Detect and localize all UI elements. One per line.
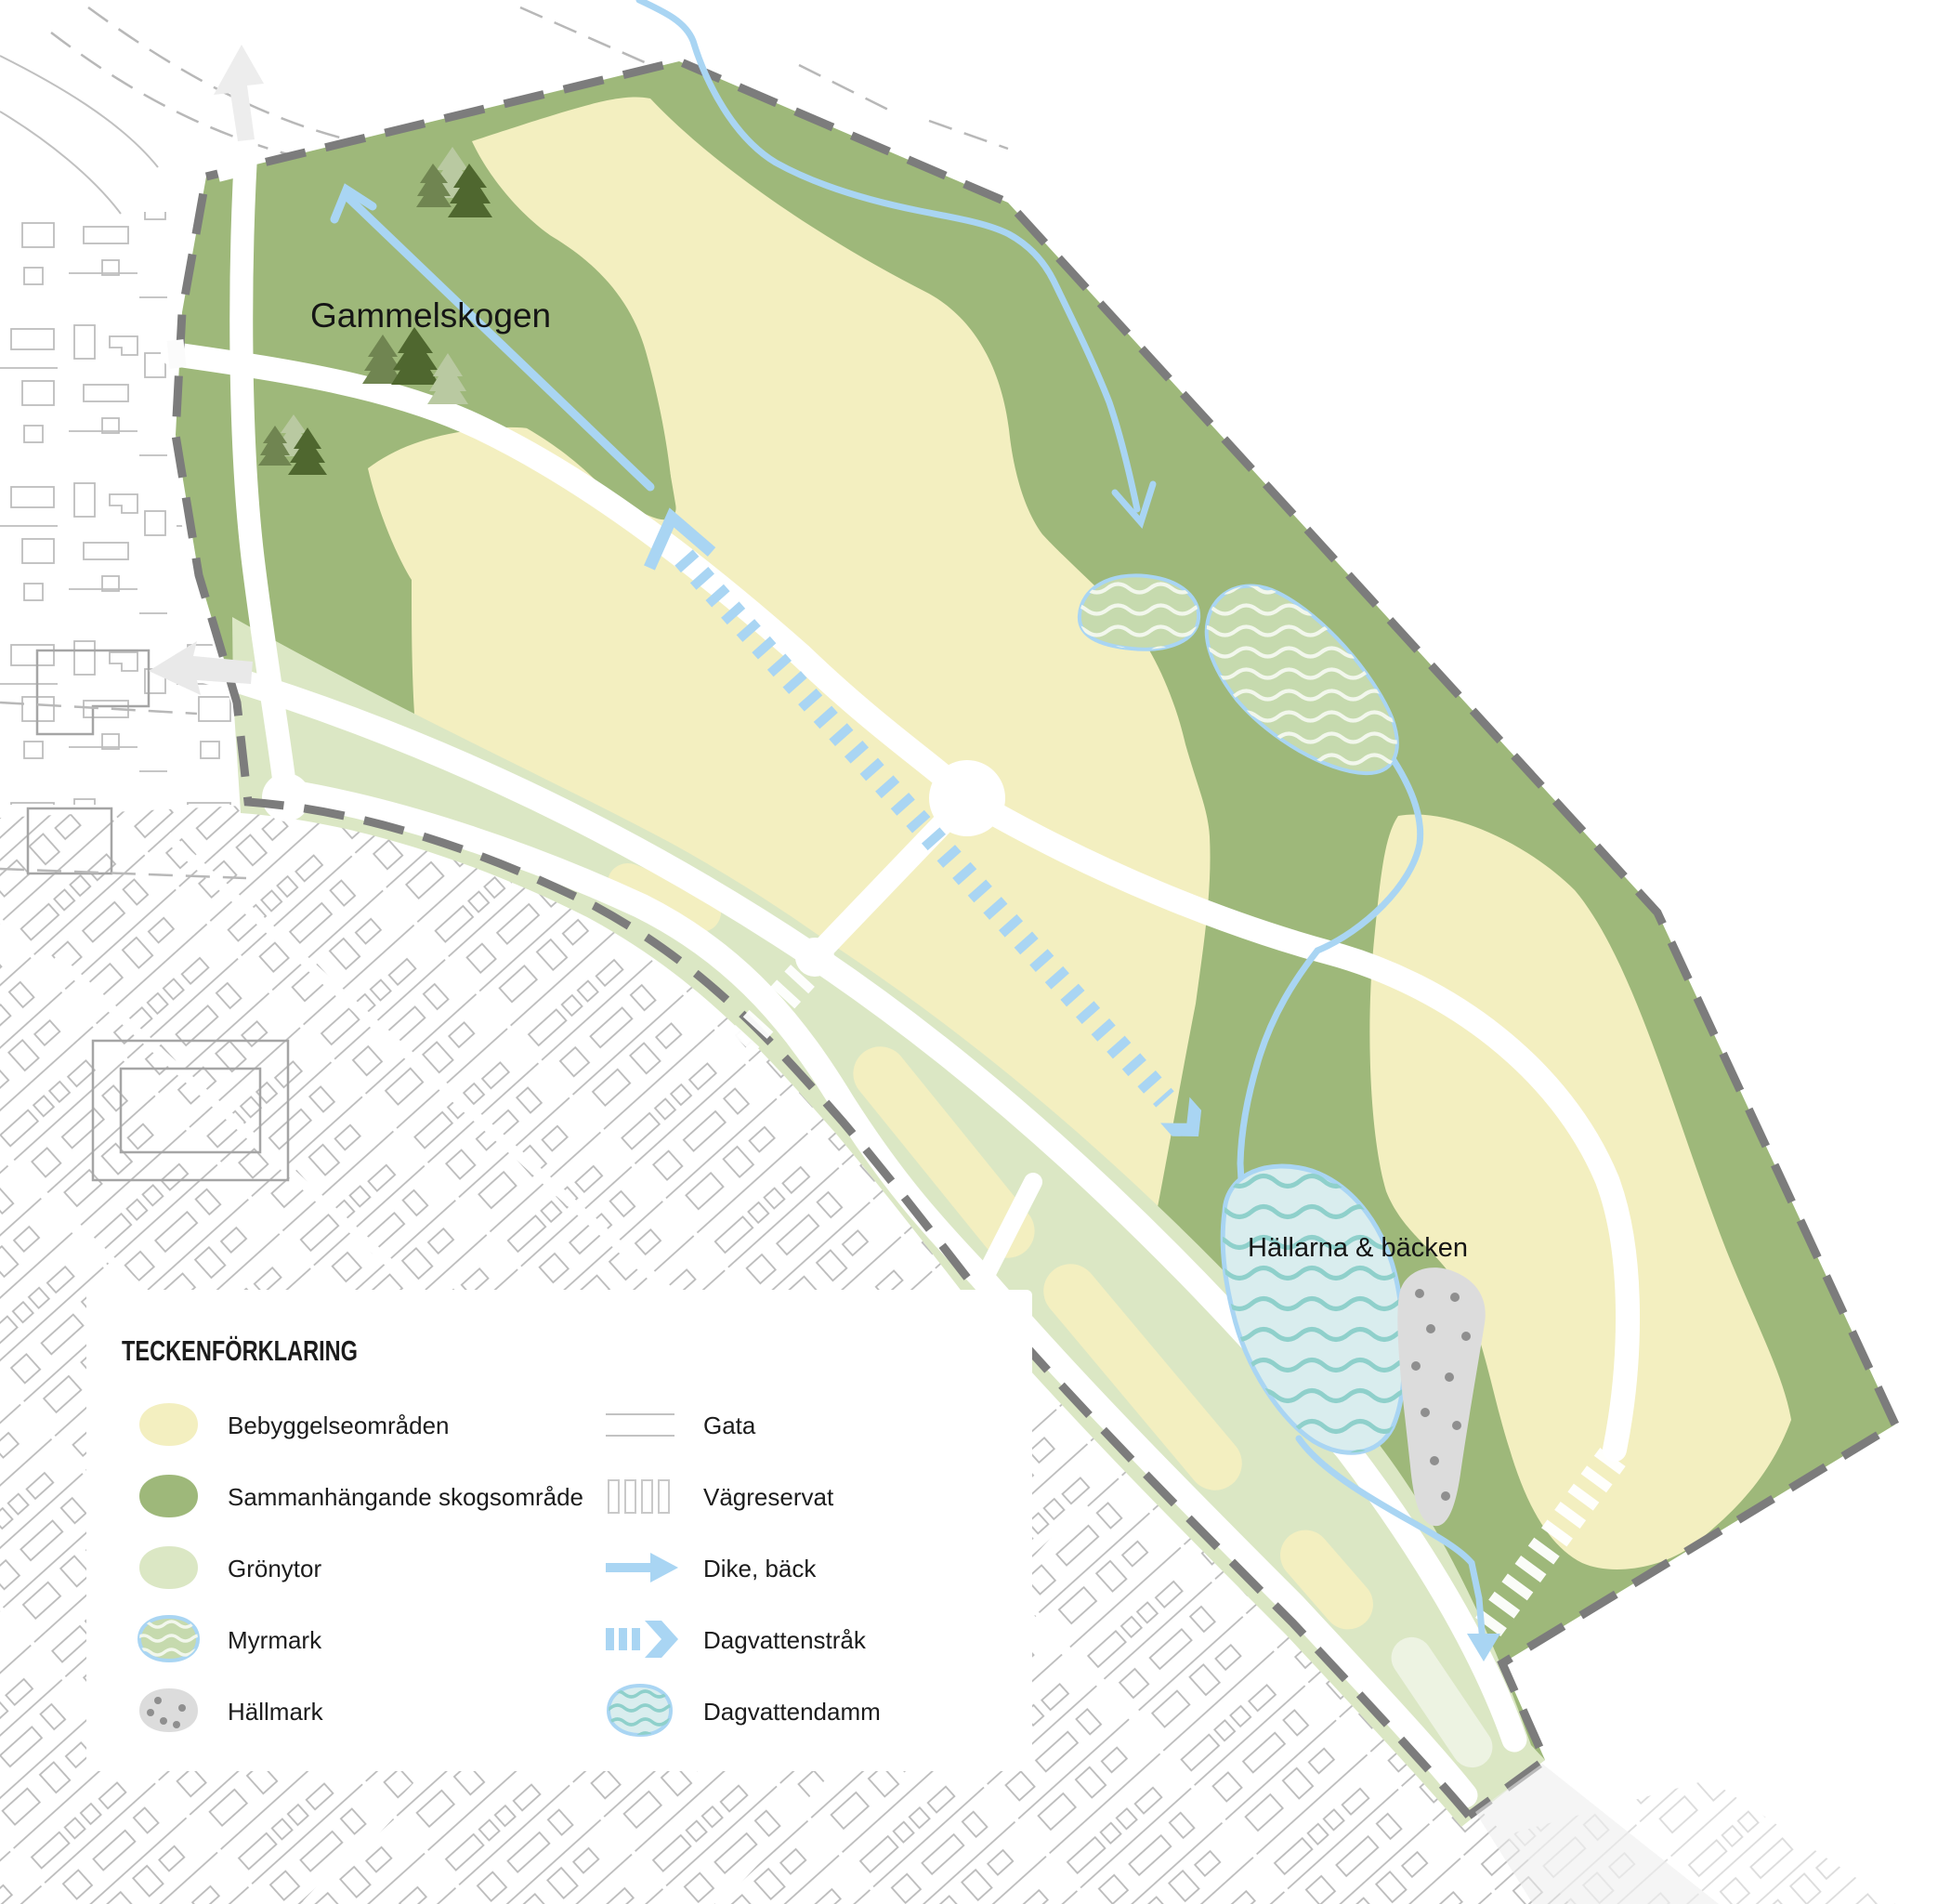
svg-text:Sammanhängande skogsområde: Sammanhängande skogsområde: [228, 1483, 583, 1511]
svg-text:Bebyggelseområden: Bebyggelseområden: [228, 1412, 450, 1439]
svg-text:Gata: Gata: [703, 1412, 756, 1439]
svg-text:Dagvattendamm: Dagvattendamm: [703, 1698, 881, 1726]
svg-text:Dagvattenstråk: Dagvattenstråk: [703, 1626, 867, 1654]
svg-text:TECKENFÖRKLARING: TECKENFÖRKLARING: [122, 1334, 358, 1367]
svg-text:Hällmark: Hällmark: [228, 1698, 324, 1726]
svg-text:Vägreservat: Vägreservat: [703, 1483, 834, 1511]
svg-text:Gammelskogen: Gammelskogen: [310, 296, 551, 335]
svg-text:Dike, bäck: Dike, bäck: [703, 1555, 817, 1582]
svg-text:Grönytor: Grönytor: [228, 1555, 321, 1582]
svg-text:Myrmark: Myrmark: [228, 1626, 322, 1654]
svg-text:Hällarna & bäcken: Hällarna & bäcken: [1248, 1233, 1468, 1263]
